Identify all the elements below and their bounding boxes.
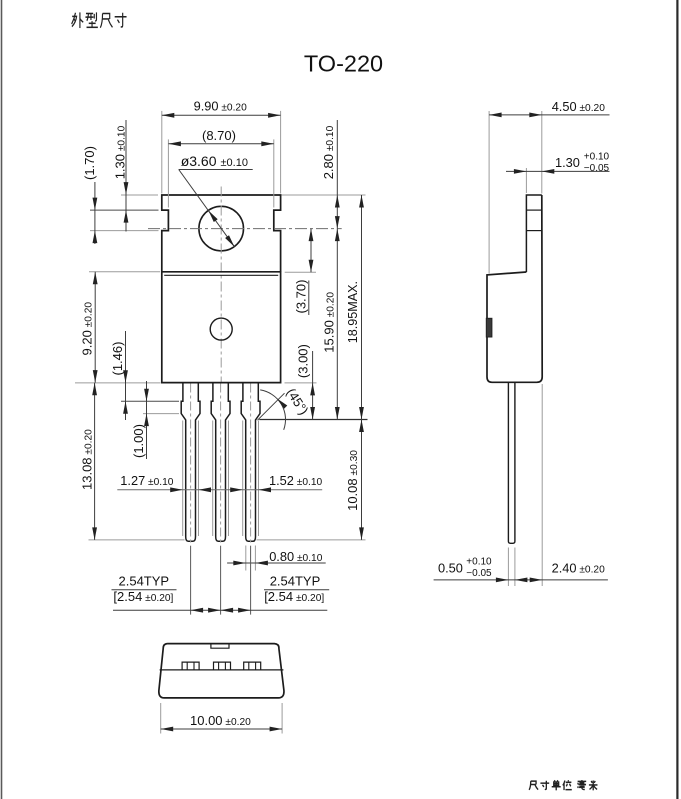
svg-text:1.27 ±0.10: 1.27 ±0.10: [120, 473, 174, 488]
svg-text:(3.70): (3.70): [294, 280, 309, 314]
svg-text:ø3.60: ø3.60: [181, 153, 217, 169]
svg-text:2.40 ±0.20: 2.40 ±0.20: [552, 561, 606, 576]
svg-text:(8.70): (8.70): [202, 128, 236, 143]
svg-text:15.90 ±0.20: 15.90 ±0.20: [322, 292, 337, 353]
svg-text:9.20 ±0.20: 9.20 ±0.20: [80, 302, 95, 356]
svg-text:−0.05: −0.05: [466, 568, 492, 579]
svg-text:+0.10: +0.10: [584, 152, 610, 163]
svg-text:2.80 ±0.10: 2.80 ±0.10: [321, 125, 336, 179]
svg-text:(1.00): (1.00): [131, 424, 146, 458]
svg-text:(3.00): (3.00): [295, 344, 310, 378]
svg-text:1.30 ±0.10: 1.30 ±0.10: [112, 125, 127, 179]
svg-text:13.08 ±0.20: 13.08 ±0.20: [80, 429, 95, 490]
svg-text:[2.54 ±0.20]: [2.54 ±0.20]: [113, 589, 173, 604]
svg-text:[2.54 ±0.20]: [2.54 ±0.20]: [264, 589, 324, 604]
svg-text:10.00 ±0.20: 10.00 ±0.20: [190, 713, 251, 728]
svg-text:2.54TYP: 2.54TYP: [119, 574, 170, 589]
svg-text:0.50: 0.50: [438, 561, 463, 576]
svg-text:(45°): (45°): [283, 385, 311, 417]
svg-text:10.08 ±0.30: 10.08 ±0.30: [345, 450, 360, 511]
svg-text:18.95MAX.: 18.95MAX.: [346, 281, 360, 343]
svg-text:±0.10: ±0.10: [221, 157, 248, 169]
svg-text:(1.46): (1.46): [110, 342, 125, 376]
svg-text:1.52 ±0.10: 1.52 ±0.10: [269, 473, 323, 488]
svg-text:−0.05: −0.05: [584, 163, 610, 174]
svg-text:2.54TYP: 2.54TYP: [270, 574, 321, 589]
svg-text:TO-220: TO-220: [304, 51, 383, 77]
svg-text:0.80 ±0.10: 0.80 ±0.10: [269, 549, 323, 564]
svg-text:9.90 ±0.20: 9.90 ±0.20: [194, 98, 248, 113]
svg-text:(1.70): (1.70): [82, 146, 97, 180]
svg-text:+0.10: +0.10: [466, 557, 492, 568]
svg-text:4.50 ±0.20: 4.50 ±0.20: [552, 99, 606, 114]
svg-text:1.30: 1.30: [555, 155, 580, 170]
